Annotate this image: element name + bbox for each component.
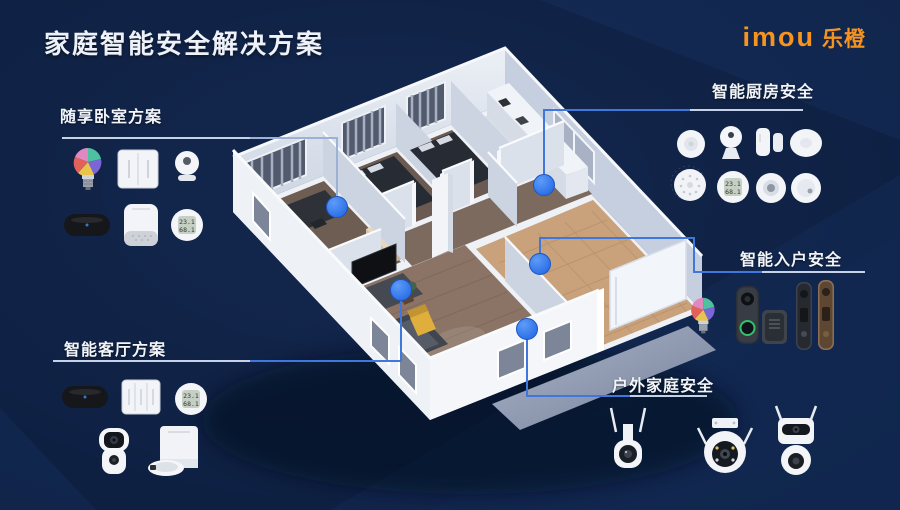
bedroom-group-label: 随享卧室方案 (60, 103, 162, 127)
bedroom-products: 23.1 68.1 (64, 148, 203, 246)
dual-lens-indoor-camera-icon (99, 428, 129, 474)
ceiling-sensor-icon (790, 129, 822, 157)
video-doorbell-icon (736, 286, 759, 344)
floorplan-3d (202, 48, 738, 494)
living-products: 23.1 68.1 (62, 380, 207, 476)
gas-detector-icon (756, 173, 786, 203)
smart-button-icon (677, 130, 705, 158)
door-frame-post (597, 288, 604, 353)
brand-logo-cn: 乐橙 (822, 23, 866, 53)
svg-text:23.1: 23.1 (183, 392, 199, 400)
doorbell-chime-icon (762, 310, 787, 344)
sleep-monitor-sensor-icon (64, 214, 110, 236)
marker-dot-entry (530, 254, 551, 275)
kitchen-products: 23.1 68.1 (674, 126, 822, 203)
smart-door-lock-bronze-icon (818, 280, 834, 350)
living-group-label: 智能客厅方案 (64, 336, 166, 360)
brand-logo: imou 乐橙 (743, 22, 867, 53)
entry-group-label: 智能入户安全 (740, 246, 842, 270)
sleep-monitor-sensor-icon (62, 386, 108, 408)
temp-humidity-sensor-icon: 23.1 68.1 (717, 171, 749, 203)
door-window-sensor-icon (756, 128, 783, 156)
temp-humidity-sensor-icon: 23.1 68.1 (171, 209, 203, 241)
svg-text:68.1: 68.1 (725, 188, 741, 196)
brand-logo-en: imou (743, 22, 816, 53)
marker-dot-living (391, 280, 412, 301)
rgb-smart-bulb-icon (74, 148, 102, 190)
smart-speaker-alarm-icon (124, 204, 158, 246)
smoke-detector-icon (791, 173, 821, 203)
kitchen-camera-icon (720, 126, 742, 159)
smart-siren-icon (674, 169, 706, 201)
svg-text:68.1: 68.1 (183, 400, 199, 408)
svg-text:68.1: 68.1 (179, 226, 195, 234)
marker-dot-outdoor (517, 319, 538, 340)
svg-text:23.1: 23.1 (725, 180, 741, 188)
wall-switch-2gang-icon (118, 150, 158, 188)
temp-humidity-sensor-icon: 23.1 68.1 (175, 383, 207, 415)
slide: 23.1 68.1 (0, 0, 900, 510)
svg-text:23.1: 23.1 (179, 218, 195, 226)
indoor-pan-camera-icon (175, 151, 199, 181)
marker-dot-kitchen (534, 175, 555, 196)
marker-dot-bedroom (327, 197, 348, 218)
outdoor-group-label: 户外家庭安全 (612, 372, 714, 396)
robot-vacuum-with-dock-icon (148, 426, 198, 476)
page-title: 家庭智能安全解决方案 (44, 24, 324, 61)
kitchen-group-label: 智能厨房安全 (712, 78, 814, 102)
wall-switch-3gang-icon (122, 380, 160, 414)
smart-door-lock-black-icon (796, 282, 812, 350)
